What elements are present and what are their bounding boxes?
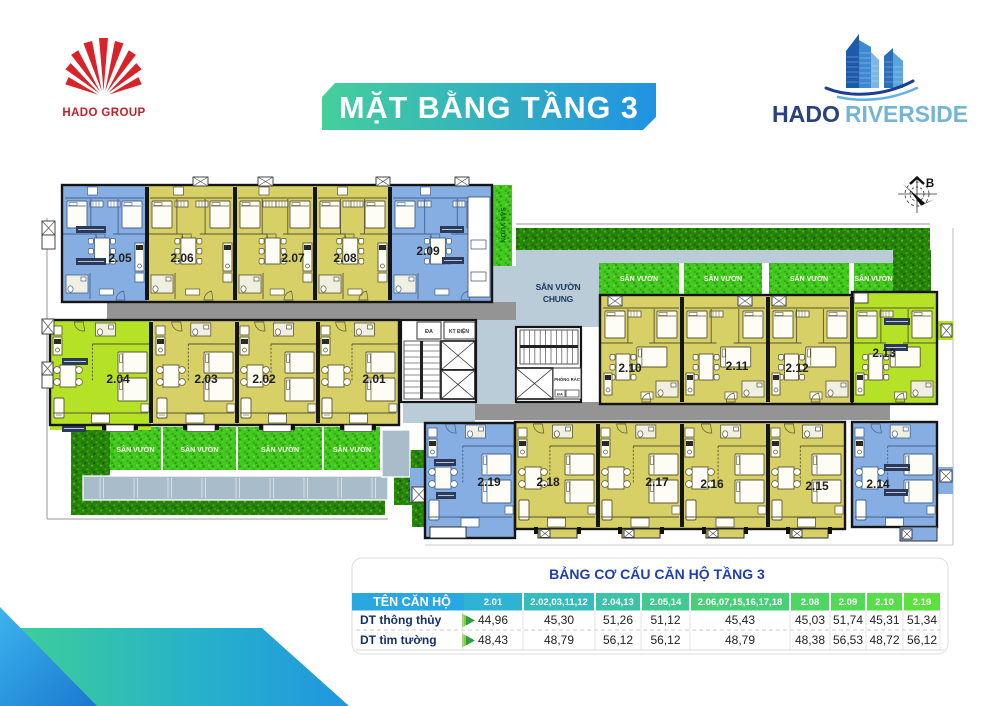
svg-text:2.16: 2.16 bbox=[700, 477, 724, 491]
svg-text:51,26: 51,26 bbox=[603, 613, 633, 627]
svg-text:SÂN VƯỜN: SÂN VƯỜN bbox=[499, 207, 508, 243]
svg-text:48,43: 48,43 bbox=[478, 633, 508, 647]
svg-text:2.05,14: 2.05,14 bbox=[650, 597, 682, 608]
svg-text:2.19: 2.19 bbox=[913, 597, 932, 608]
svg-text:45,43: 45,43 bbox=[725, 613, 755, 627]
svg-text:SÂN VƯỜN: SÂN VƯỜN bbox=[536, 281, 581, 292]
svg-text:2.14: 2.14 bbox=[866, 477, 890, 491]
svg-text:CHUNG: CHUNG bbox=[543, 294, 574, 304]
svg-text:SÂN VƯỜN: SÂN VƯỜN bbox=[180, 445, 218, 454]
svg-text:56,53: 56,53 bbox=[833, 633, 863, 647]
svg-text:2.09: 2.09 bbox=[839, 597, 858, 608]
svg-text:56,12: 56,12 bbox=[603, 633, 633, 647]
svg-text:56,12: 56,12 bbox=[907, 633, 937, 647]
svg-text:2.07: 2.07 bbox=[281, 251, 305, 265]
svg-text:2.03: 2.03 bbox=[194, 372, 218, 386]
svg-text:2.15: 2.15 bbox=[805, 479, 829, 493]
svg-text:2.02,03,11,12: 2.02,03,11,12 bbox=[530, 597, 588, 608]
svg-text:56,12: 56,12 bbox=[650, 633, 680, 647]
svg-text:RIVERSIDE: RIVERSIDE bbox=[845, 101, 968, 127]
svg-text:51,74: 51,74 bbox=[833, 613, 863, 627]
svg-text:2.17: 2.17 bbox=[645, 475, 669, 489]
svg-text:2.19: 2.19 bbox=[477, 475, 501, 489]
svg-text:2.13: 2.13 bbox=[872, 346, 896, 360]
svg-text:2.04,13: 2.04,13 bbox=[602, 597, 634, 608]
svg-text:2.08: 2.08 bbox=[801, 597, 820, 608]
svg-text:HADO GROUP: HADO GROUP bbox=[62, 107, 145, 119]
svg-text:KT ĐIỆN: KT ĐIỆN bbox=[449, 327, 469, 335]
svg-text:PHÒNG RÁC: PHÒNG RÁC bbox=[554, 377, 580, 382]
svg-text:TÊN CĂN HỘ: TÊN CĂN HỘ bbox=[373, 594, 451, 609]
svg-text:2.12: 2.12 bbox=[785, 361, 809, 375]
svg-text:2.04: 2.04 bbox=[106, 372, 130, 386]
svg-text:51,12: 51,12 bbox=[650, 613, 680, 627]
svg-text:BẢNG CƠ CẤU CĂN HỘ TẦNG 3: BẢNG CƠ CẤU CĂN HỘ TẦNG 3 bbox=[549, 565, 765, 582]
svg-text:SÂN VƯỜN: SÂN VƯỜN bbox=[790, 274, 828, 283]
svg-text:45,30: 45,30 bbox=[544, 613, 574, 627]
svg-text:48,72: 48,72 bbox=[869, 633, 899, 647]
svg-text:2.10: 2.10 bbox=[875, 597, 894, 608]
svg-text:DT tìm tường: DT tìm tường bbox=[360, 633, 437, 647]
svg-text:ĐA: ĐA bbox=[557, 392, 563, 397]
svg-text:48,79: 48,79 bbox=[725, 633, 755, 647]
svg-text:2.01: 2.01 bbox=[484, 597, 503, 608]
svg-text:B: B bbox=[926, 178, 934, 190]
svg-text:SÂN VƯỜN: SÂN VƯỜN bbox=[261, 445, 299, 454]
svg-text:2.06: 2.06 bbox=[170, 251, 194, 265]
svg-text:DT thông thủy: DT thông thủy bbox=[360, 613, 442, 627]
svg-text:HADO: HADO bbox=[772, 101, 840, 127]
svg-text:45,31: 45,31 bbox=[869, 613, 899, 627]
svg-text:SÂN VƯỜN: SÂN VƯỜN bbox=[620, 274, 658, 283]
svg-text:2.05: 2.05 bbox=[108, 251, 132, 265]
svg-text:2.08: 2.08 bbox=[333, 251, 357, 265]
svg-text:SÂN VƯỜN: SÂN VƯỜN bbox=[333, 445, 371, 454]
svg-text:ĐA: ĐA bbox=[425, 329, 433, 335]
svg-text:2.02: 2.02 bbox=[252, 372, 276, 386]
svg-text:48,79: 48,79 bbox=[544, 633, 574, 647]
svg-text:44,96: 44,96 bbox=[478, 613, 508, 627]
svg-text:45,03: 45,03 bbox=[795, 613, 825, 627]
svg-text:2.06,07,15,16,17,18: 2.06,07,15,16,17,18 bbox=[698, 597, 783, 608]
svg-text:2.01: 2.01 bbox=[362, 372, 386, 386]
svg-text:2.18: 2.18 bbox=[536, 475, 560, 489]
svg-text:MẶT BẰNG TẦNG 3: MẶT BẰNG TẦNG 3 bbox=[339, 90, 639, 125]
svg-text:SÂN VƯỜN: SÂN VƯỜN bbox=[854, 274, 892, 283]
svg-text:51,34: 51,34 bbox=[907, 613, 937, 627]
svg-text:2.10: 2.10 bbox=[618, 361, 642, 375]
svg-text:SÂN VƯỜN: SÂN VƯỜN bbox=[116, 445, 154, 454]
svg-text:SÂN VƯỜN: SÂN VƯỜN bbox=[704, 274, 742, 283]
svg-text:48,38: 48,38 bbox=[795, 633, 825, 647]
svg-text:2.09: 2.09 bbox=[416, 244, 440, 258]
svg-text:2.11: 2.11 bbox=[726, 359, 749, 373]
